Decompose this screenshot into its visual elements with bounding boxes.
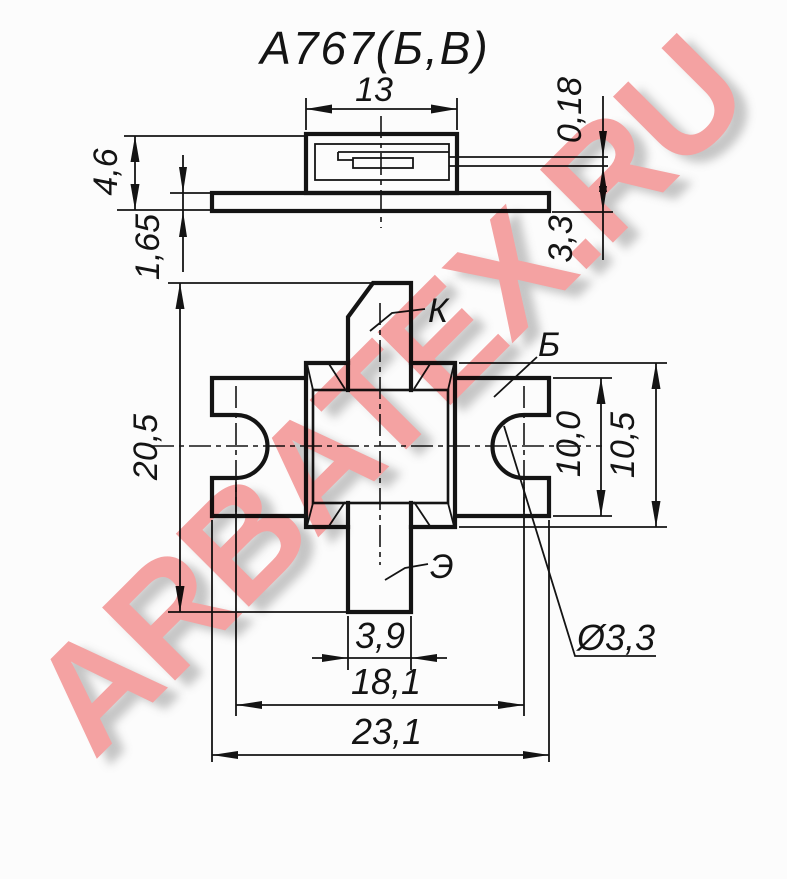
dim-hole-spacing-label: 18,1 — [351, 661, 421, 702]
dim-emitter-width-label: 3,9 — [355, 615, 405, 656]
side-dimensions: 13 4,6 1,65 0,18 3,3 — [87, 71, 613, 280]
dim-flange-thickness-label: 1,65 — [129, 214, 167, 280]
dim-total-width-label: 23,1 — [351, 711, 422, 752]
plan-dimensions: 20,5 10,0 10,5 3,9 18,1 23,1 Ø3,3 К — [127, 283, 667, 762]
side-leadframe — [353, 158, 413, 168]
base-label: Б — [538, 326, 560, 364]
collector-leader — [370, 309, 425, 331]
emitter-leader — [385, 564, 428, 580]
technical-drawing: А767(Б,В) 13 4,6 1,65 — [0, 0, 787, 787]
drawing-svg: А767(Б,В) 13 4,6 1,65 — [0, 0, 787, 787]
plan-flange-right-wing — [455, 378, 549, 516]
dim-205-lines — [168, 283, 372, 612]
emitter-label: Э — [430, 548, 454, 586]
dim-flange-width-label: 10,5 — [604, 412, 642, 478]
side-cap-step2 — [338, 152, 353, 160]
side-cap-inner — [315, 144, 449, 180]
side-view — [212, 116, 608, 228]
dim-lead-thickness-label: 0,18 — [551, 77, 589, 143]
collector-label: К — [428, 292, 450, 330]
dim-hole-diameter-label: Ø3,3 — [576, 617, 655, 658]
dim-165-lines — [170, 155, 212, 272]
plan-flange-left-wing — [212, 378, 306, 516]
dim-body-width-label: 10,0 — [550, 411, 588, 477]
plan-view — [152, 283, 602, 612]
dim-total-height-label: 4,6 — [87, 148, 125, 195]
plan-collector-lead — [348, 283, 411, 390]
dim-total-length-label: 20,5 — [127, 414, 165, 481]
dim-cap-width-label: 13 — [355, 71, 393, 109]
drawing-title: А767(Б,В) — [257, 22, 489, 74]
dim-lead-offset-label: 3,3 — [542, 215, 580, 262]
